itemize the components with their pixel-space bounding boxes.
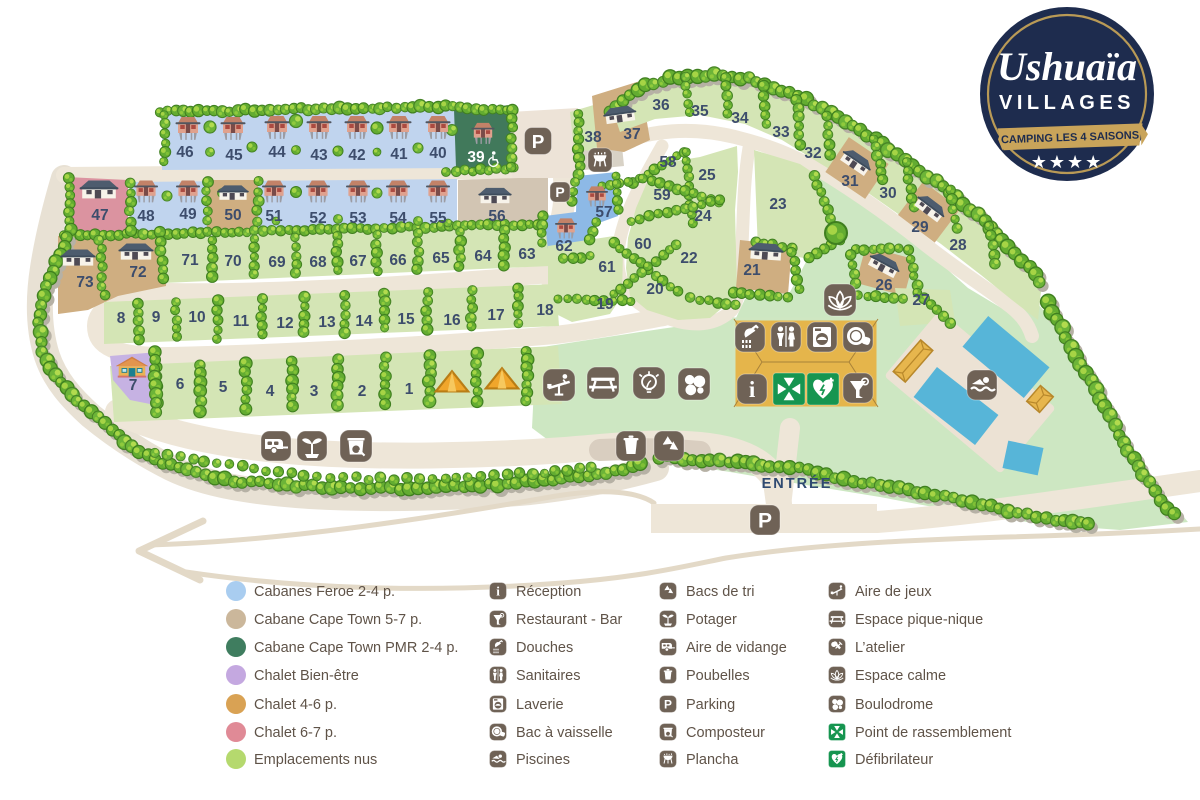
svg-text:Chalet 6-7 p.: Chalet 6-7 p. <box>254 725 337 741</box>
svg-text:Chalet Bien-être: Chalet Bien-être <box>254 668 359 684</box>
svg-text:Espace calme: Espace calme <box>855 668 946 684</box>
svg-text:73: 73 <box>76 274 94 291</box>
svg-text:i: i <box>749 377 756 402</box>
svg-text:44: 44 <box>268 144 286 161</box>
svg-text:69: 69 <box>268 254 286 271</box>
svg-text:39: 39 <box>467 149 485 166</box>
svg-text:2: 2 <box>358 383 367 400</box>
svg-text:52: 52 <box>309 210 326 227</box>
svg-text:38: 38 <box>584 129 602 146</box>
svg-text:1: 1 <box>405 381 414 398</box>
svg-text:Défibrilateur: Défibrilateur <box>855 752 933 768</box>
svg-text:31: 31 <box>841 173 859 190</box>
svg-text:19: 19 <box>596 296 614 313</box>
svg-text:9: 9 <box>152 309 161 326</box>
svg-text:48: 48 <box>137 208 155 225</box>
svg-text:70: 70 <box>224 253 241 270</box>
svg-text:51: 51 <box>265 208 283 225</box>
svg-text:42: 42 <box>348 147 365 164</box>
svg-text:i: i <box>496 584 500 599</box>
svg-text:P: P <box>664 697 672 711</box>
svg-text:Chalet 4-6 p.: Chalet 4-6 p. <box>254 697 337 713</box>
svg-text:17: 17 <box>487 307 504 324</box>
svg-text:47: 47 <box>91 207 108 224</box>
svg-text:Espace pique-nique: Espace pique-nique <box>855 612 983 628</box>
svg-text:29: 29 <box>911 219 929 236</box>
svg-text:7: 7 <box>129 377 138 394</box>
svg-text:34: 34 <box>731 110 749 127</box>
svg-text:56: 56 <box>488 208 506 225</box>
svg-text:36: 36 <box>652 97 670 114</box>
svg-text:Cabane Cape Town 5-7 p.: Cabane Cape Town 5-7 p. <box>254 612 422 628</box>
svg-text:16: 16 <box>443 312 461 329</box>
svg-text:37: 37 <box>623 126 640 143</box>
svg-text:14: 14 <box>355 313 373 330</box>
svg-text:15: 15 <box>397 311 415 328</box>
svg-text:58: 58 <box>659 154 677 171</box>
svg-text:P: P <box>555 184 564 200</box>
svg-text:62: 62 <box>555 238 572 255</box>
svg-text:65: 65 <box>432 250 450 267</box>
svg-text:72: 72 <box>129 264 146 281</box>
svg-text:22: 22 <box>680 250 697 267</box>
svg-text:4: 4 <box>266 383 275 400</box>
svg-text:25: 25 <box>698 167 716 184</box>
svg-text:57: 57 <box>595 204 612 221</box>
svg-text:Emplacements nus: Emplacements nus <box>254 752 377 768</box>
svg-text:Restaurant - Bar: Restaurant - Bar <box>516 612 623 628</box>
svg-text:Piscines: Piscines <box>516 752 570 768</box>
svg-text:★★★★: ★★★★ <box>1031 152 1104 172</box>
svg-text:VILLAGES: VILLAGES <box>999 92 1135 114</box>
svg-text:40: 40 <box>429 145 446 162</box>
svg-text:Boulodrome: Boulodrome <box>855 697 933 713</box>
svg-text:Bacs de tri: Bacs de tri <box>686 584 755 600</box>
svg-text:61: 61 <box>598 259 616 276</box>
svg-text:71: 71 <box>181 252 199 269</box>
svg-text:Bac à vaisselle: Bac à vaisselle <box>516 725 613 741</box>
svg-text:Aire de jeux: Aire de jeux <box>855 584 932 600</box>
svg-text:Aire de vidange: Aire de vidange <box>686 640 787 656</box>
svg-text:24: 24 <box>694 208 712 225</box>
svg-text:13: 13 <box>318 314 336 331</box>
svg-text:ENTRÉE: ENTRÉE <box>762 475 833 492</box>
svg-text:54: 54 <box>389 210 407 227</box>
svg-text:27: 27 <box>912 292 929 309</box>
svg-text:12: 12 <box>276 315 293 332</box>
svg-text:Composteur: Composteur <box>686 725 765 741</box>
svg-text:L’atelier: L’atelier <box>855 640 905 656</box>
svg-text:Cabanes Feroe 2-4 p.: Cabanes Feroe 2-4 p. <box>254 584 395 600</box>
svg-text:63: 63 <box>518 246 536 263</box>
svg-text:P: P <box>532 132 545 153</box>
svg-text:46: 46 <box>176 144 194 161</box>
svg-text:59: 59 <box>653 187 671 204</box>
svg-text:11: 11 <box>233 313 250 330</box>
svg-text:23: 23 <box>769 196 787 213</box>
svg-text:18: 18 <box>536 302 554 319</box>
svg-text:P: P <box>758 510 772 533</box>
svg-text:60: 60 <box>634 236 651 253</box>
svg-text:5: 5 <box>219 379 228 396</box>
svg-text:35: 35 <box>691 103 709 120</box>
svg-text:66: 66 <box>389 252 407 269</box>
svg-text:6: 6 <box>176 376 185 393</box>
svg-text:Douches: Douches <box>516 640 573 656</box>
svg-text:32: 32 <box>804 145 821 162</box>
svg-text:Réception: Réception <box>516 584 581 600</box>
svg-text:67: 67 <box>349 253 366 270</box>
svg-text:Cabane Cape Town PMR 2-4 p.: Cabane Cape Town PMR 2-4 p. <box>254 640 458 656</box>
svg-text:53: 53 <box>349 210 367 227</box>
svg-text:45: 45 <box>225 147 243 164</box>
svg-text:50: 50 <box>224 207 241 224</box>
svg-text:20: 20 <box>646 281 663 298</box>
svg-text:Laverie: Laverie <box>516 697 564 713</box>
svg-text:68: 68 <box>309 254 327 271</box>
svg-text:55: 55 <box>429 210 447 227</box>
svg-text:Point de rassemblement: Point de rassemblement <box>855 725 1011 741</box>
svg-text:Plancha: Plancha <box>686 752 739 768</box>
svg-text:8: 8 <box>117 310 126 327</box>
svg-text:41: 41 <box>390 146 408 163</box>
svg-text:10: 10 <box>188 309 205 326</box>
svg-text:26: 26 <box>875 277 893 294</box>
svg-text:30: 30 <box>879 185 896 202</box>
svg-text:Potager: Potager <box>686 612 737 628</box>
svg-text:Parking: Parking <box>686 697 735 713</box>
svg-text:64: 64 <box>474 248 492 265</box>
svg-text:3: 3 <box>310 383 319 400</box>
svg-text:Sanitaires: Sanitaires <box>516 668 580 684</box>
svg-text:21: 21 <box>743 262 761 279</box>
svg-text:Ushuaïa: Ushuaïa <box>997 44 1137 89</box>
svg-text:28: 28 <box>949 237 967 254</box>
svg-text:33: 33 <box>772 124 790 141</box>
svg-text:49: 49 <box>179 206 197 223</box>
svg-text:Poubelles: Poubelles <box>686 668 750 684</box>
svg-text:43: 43 <box>310 147 328 164</box>
